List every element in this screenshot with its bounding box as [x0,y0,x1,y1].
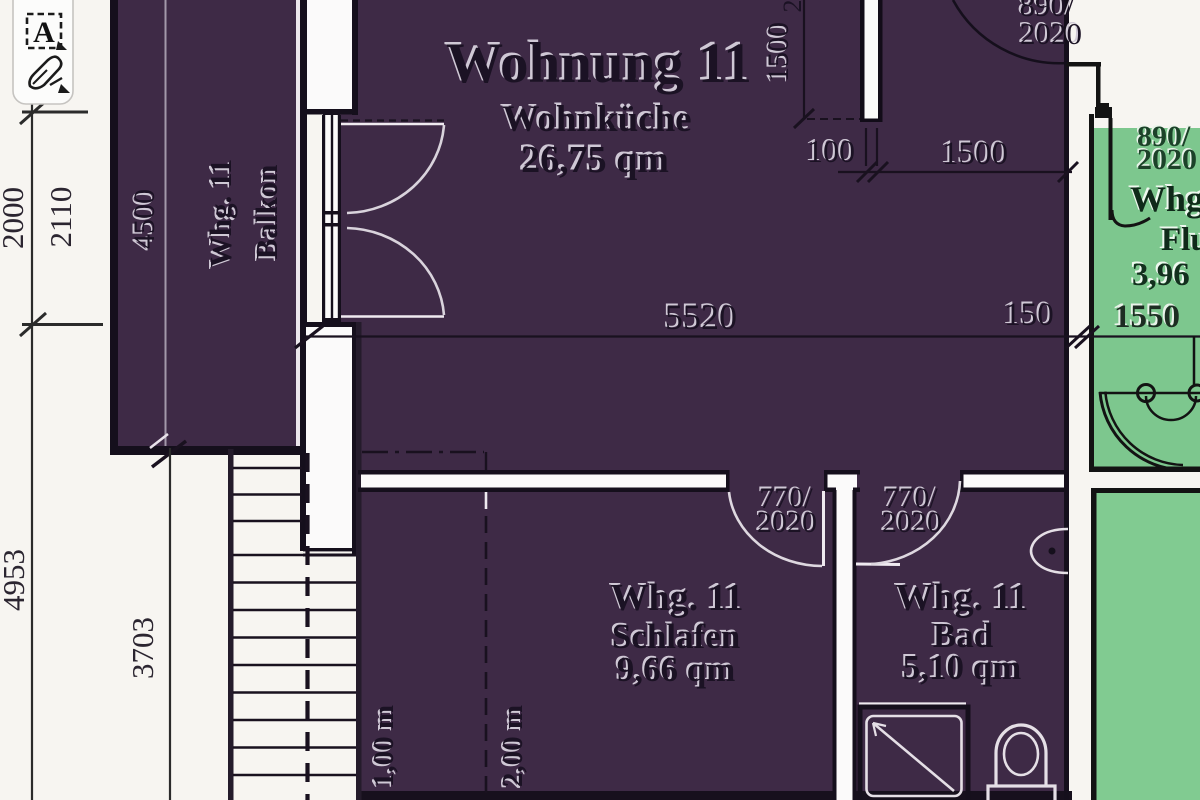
svg-text:2020: 2020 [882,506,942,539]
svg-text:3,96: 3,96 [1132,257,1190,293]
svg-text:Wohnküche: Wohnküche [502,99,691,140]
svg-text:4953: 4953 [0,549,31,611]
svg-text:2,00 m: 2,00 m [497,705,529,787]
svg-text:4500: 4500 [128,189,161,249]
svg-text:2110: 2110 [43,187,78,248]
svg-text:1500: 1500 [942,136,1008,172]
svg-text:Whg. 11: Whg. 11 [203,159,238,268]
svg-text:2: 2 [778,0,807,13]
svg-text:A: A [33,16,55,49]
svg-text:5,10 qm: 5,10 qm [903,648,1022,687]
svg-text:1550: 1550 [1114,299,1180,335]
svg-text:1500: 1500 [762,22,795,82]
svg-text:2020: 2020 [1020,16,1082,51]
svg-text:100: 100 [807,133,855,169]
svg-text:5520: 5520 [665,297,737,337]
svg-text:2000: 2000 [0,187,30,249]
svg-text:9,66 qm: 9,66 qm [617,650,736,689]
svg-text:Wohnung 11: Wohnung 11 [446,32,752,95]
svg-text:Balkon: Balkon [249,165,284,260]
svg-text:Whg. 11: Whg. 11 [1130,179,1200,219]
svg-text:2020: 2020 [1137,143,1197,176]
svg-text:Whg. 11: Whg. 11 [895,577,1028,619]
svg-text:Flur: Flur [1161,222,1200,258]
svg-text:26,75 qm: 26,75 qm [521,139,669,181]
svg-text:2020: 2020 [757,506,817,539]
svg-text:150: 150 [1004,297,1054,333]
svg-text:1,00 m: 1,00 m [368,705,400,787]
svg-text:Whg. 11: Whg. 11 [610,577,743,619]
svg-text:3703: 3703 [125,617,160,679]
